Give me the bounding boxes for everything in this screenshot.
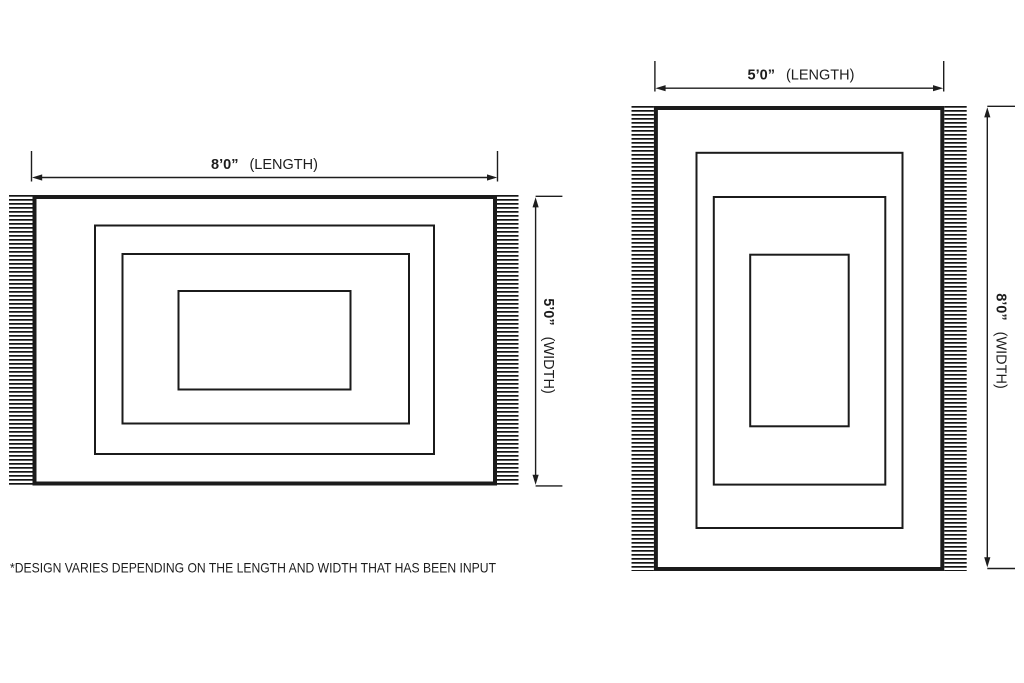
svg-text:5’0”(WIDTH): 5’0”(WIDTH) (540, 298, 556, 394)
svg-text:5’0”(LENGTH): 5’0”(LENGTH) (748, 68, 855, 84)
svg-text:8’0”(LENGTH): 8’0”(LENGTH) (211, 157, 318, 173)
svg-text:*DESIGN VARIES DEPENDING ON TH: *DESIGN VARIES DEPENDING ON THE LENGTH A… (10, 559, 496, 575)
svg-text:8’0”(WIDTH): 8’0”(WIDTH) (993, 293, 1009, 389)
